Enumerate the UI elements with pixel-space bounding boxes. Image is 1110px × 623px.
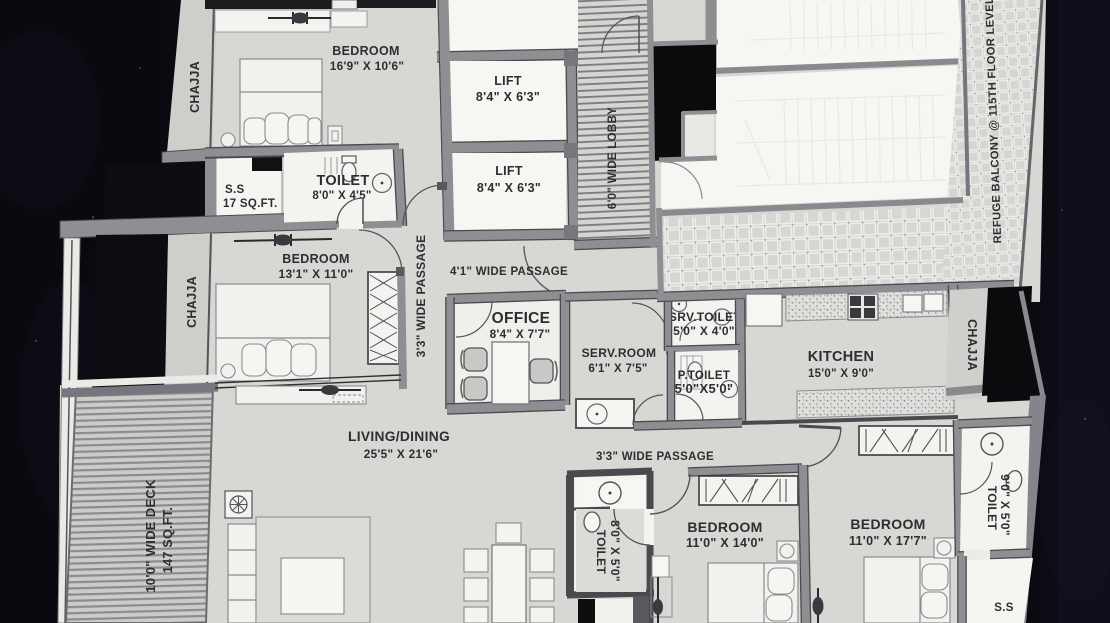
svg-text:6'0" WIDE LOBBY: 6'0" WIDE LOBBY — [607, 107, 619, 209]
svg-text:BEDROOM: BEDROOM — [850, 516, 925, 532]
svg-text:S.S: S.S — [225, 184, 244, 196]
svg-text:LIVING/DINING: LIVING/DINING — [348, 429, 450, 444]
svg-text:6'1" X 7'5": 6'1" X 7'5" — [588, 363, 647, 375]
svg-text:CHAJJA: CHAJJA — [965, 319, 979, 371]
svg-text:KITCHEN: KITCHEN — [808, 349, 875, 365]
svg-text:16'9" X 10'6": 16'9" X 10'6" — [330, 59, 405, 73]
svg-text:13'1" X 11'0": 13'1" X 11'0" — [278, 267, 353, 281]
svg-text:147 SQ.FT.: 147 SQ.FT. — [161, 507, 175, 573]
svg-text:CHAJJA: CHAJJA — [188, 61, 202, 113]
svg-text:OFFICE: OFFICE — [492, 310, 551, 327]
svg-text:BEDROOM: BEDROOM — [687, 519, 762, 535]
svg-text:TOILET: TOILET — [594, 530, 608, 575]
svg-text:LIFT: LIFT — [494, 74, 522, 88]
svg-text:17 SQ.FT.: 17 SQ.FT. — [223, 198, 277, 210]
svg-text:25'5" X 21'6": 25'5" X 21'6" — [364, 447, 439, 461]
svg-text:9'0" X 5'0": 9'0" X 5'0" — [998, 474, 1012, 536]
svg-text:5'0" X 4'0": 5'0" X 4'0" — [673, 324, 735, 338]
svg-text:BEDROOM: BEDROOM — [282, 252, 349, 266]
svg-text:CHAJJA: CHAJJA — [185, 276, 199, 328]
svg-text:8'4" X 7'7": 8'4" X 7'7" — [490, 327, 551, 341]
svg-text:LIFT: LIFT — [495, 164, 523, 178]
svg-text:SERV.ROOM: SERV.ROOM — [582, 346, 657, 360]
svg-text:TOILET: TOILET — [316, 173, 369, 189]
svg-text:3'3" WIDE PASSAGE: 3'3" WIDE PASSAGE — [414, 235, 428, 358]
svg-text:3'3" WIDE PASSAGE: 3'3" WIDE PASSAGE — [596, 451, 714, 463]
svg-text:15'0" X 9'0": 15'0" X 9'0" — [808, 368, 874, 380]
svg-text:4'1" WIDE PASSAGE: 4'1" WIDE PASSAGE — [450, 266, 568, 278]
svg-text:11'0" X 14'0": 11'0" X 14'0" — [686, 536, 764, 550]
svg-text:S.S: S.S — [994, 602, 1013, 614]
svg-text:8'4" X 6'3": 8'4" X 6'3" — [476, 90, 540, 104]
svg-text:BEDROOM: BEDROOM — [332, 44, 399, 58]
svg-text:10'0" WIDE DECK: 10'0" WIDE DECK — [143, 479, 158, 593]
svg-text:11'0" X 17'7": 11'0" X 17'7" — [849, 534, 927, 548]
svg-text:8'4" X 6'3": 8'4" X 6'3" — [477, 181, 541, 195]
svg-text:TOILET: TOILET — [985, 486, 999, 531]
svg-text:SRV.TOILET: SRV.TOILET — [669, 310, 742, 324]
svg-text:5'0"X5'0": 5'0"X5'0" — [675, 381, 734, 396]
